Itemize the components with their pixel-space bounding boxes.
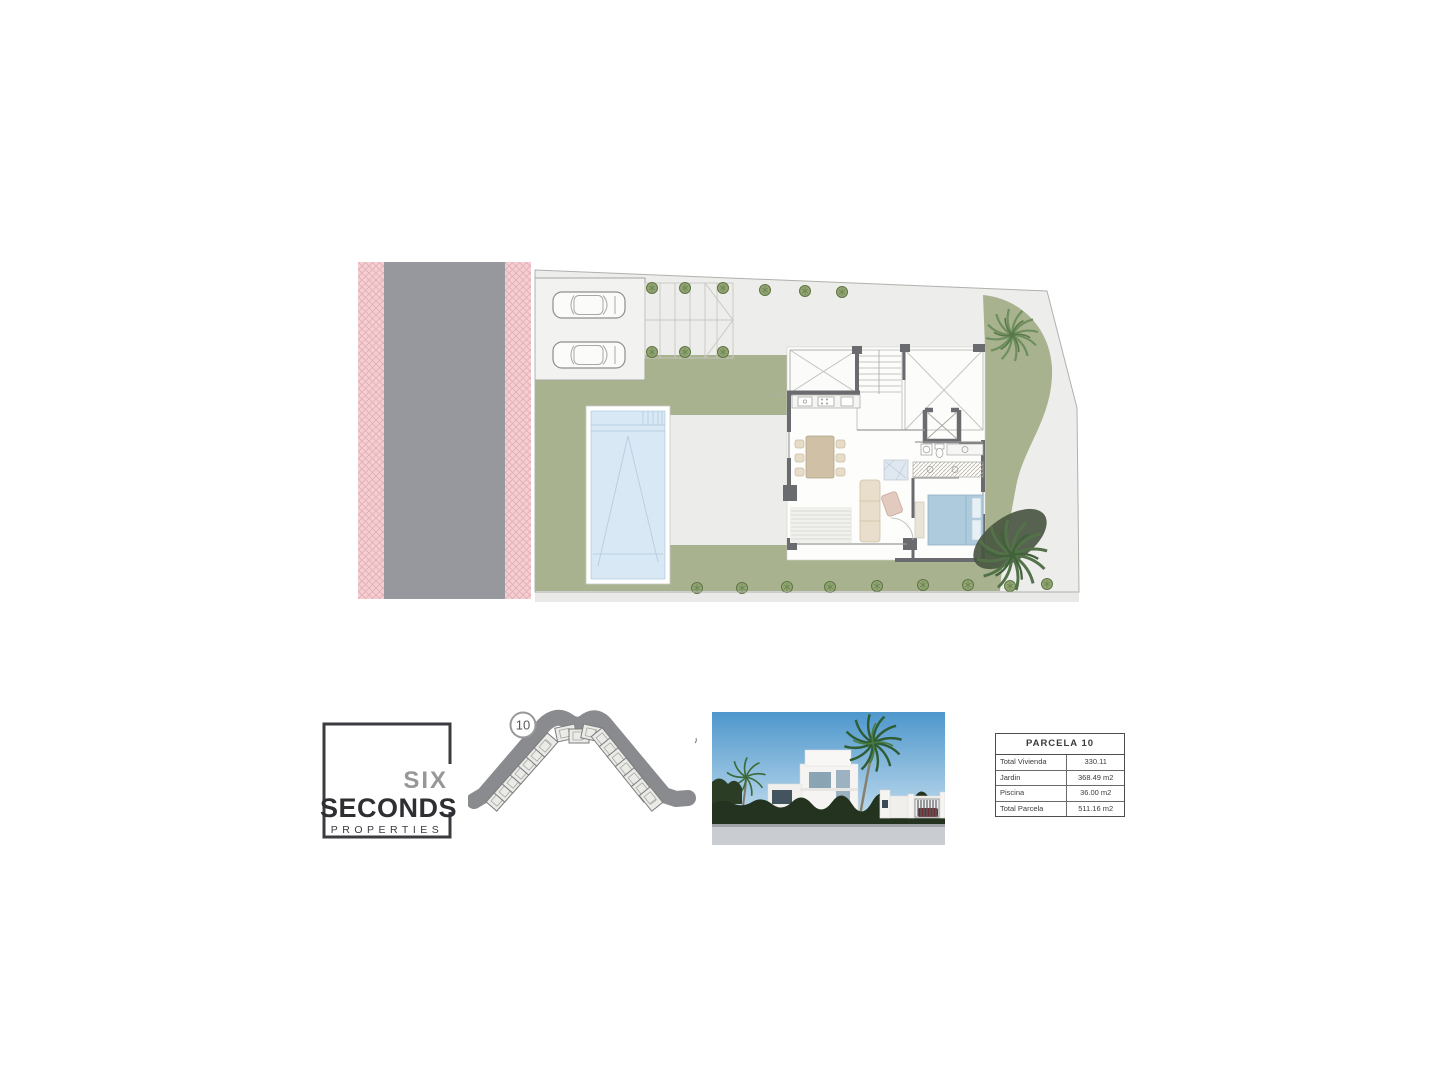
gate-slats — [918, 800, 936, 816]
plot-bottom-strip — [535, 592, 1079, 602]
location-map: 10 — [468, 700, 710, 868]
parking-area — [535, 278, 645, 380]
row-value: 368.49 m2 — [1067, 771, 1124, 786]
parcel-table-title: PARCELA 10 — [996, 734, 1124, 755]
wardrobe — [913, 462, 983, 477]
render-road — [712, 824, 945, 845]
row-label: Total Vivienda — [996, 755, 1067, 770]
logo-word-six: SIX — [403, 767, 448, 794]
house-floor-plan — [783, 344, 985, 560]
coffee-table — [884, 460, 908, 480]
car-icon — [553, 292, 625, 318]
window — [772, 790, 792, 804]
sidewalk-left-hatch — [358, 262, 384, 599]
road-shadow — [712, 824, 945, 827]
row-value: 330.11 — [1067, 755, 1124, 770]
logo-word-properties: PROPERTIES — [331, 824, 444, 836]
dining-table — [795, 436, 845, 478]
brand-logo: SIX SECONDS PROPERTIES — [316, 714, 466, 849]
gate-sign — [882, 800, 888, 808]
table-row: Piscina 36.00 m2 — [996, 786, 1124, 802]
sofa — [860, 480, 880, 542]
logo-word-seconds: SECONDS — [320, 793, 457, 823]
table-row: Jardin 368.49 m2 — [996, 771, 1124, 787]
row-label: Jardin — [996, 771, 1067, 786]
site-plan — [355, 252, 1090, 607]
balcony-rail — [800, 788, 858, 791]
double-height-void — [905, 350, 983, 430]
row-label: Total Parcela — [996, 802, 1067, 817]
window — [809, 772, 831, 788]
parcel-table: PARCELA 10 Total Vivienda 330.11 Jardin … — [995, 733, 1125, 817]
villa-render — [712, 712, 945, 845]
table-row: Total Parcela 511.16 m2 — [996, 802, 1124, 817]
terrace — [670, 415, 790, 545]
table-row: Total Vivienda 330.11 — [996, 755, 1124, 771]
row-label: Piscina — [996, 786, 1067, 801]
row-value: 511.16 m2 — [1067, 802, 1124, 817]
stairs — [857, 350, 902, 430]
pool — [586, 406, 670, 584]
plot-number: 10 — [516, 718, 530, 733]
plot-number-badge: 10 — [511, 713, 536, 738]
kitchen-counter — [792, 395, 860, 408]
road — [384, 262, 505, 599]
void-skylight — [790, 350, 857, 393]
sidewalk-right-hatch — [505, 262, 531, 599]
bed — [928, 495, 983, 545]
row-value: 36.00 m2 — [1067, 786, 1124, 801]
deck — [790, 507, 852, 543]
brochure-page: SIX SECONDS PROPERTIES — [0, 0, 1440, 1080]
dresser — [915, 502, 924, 538]
map-tick — [695, 738, 696, 743]
car-icon — [553, 342, 625, 368]
